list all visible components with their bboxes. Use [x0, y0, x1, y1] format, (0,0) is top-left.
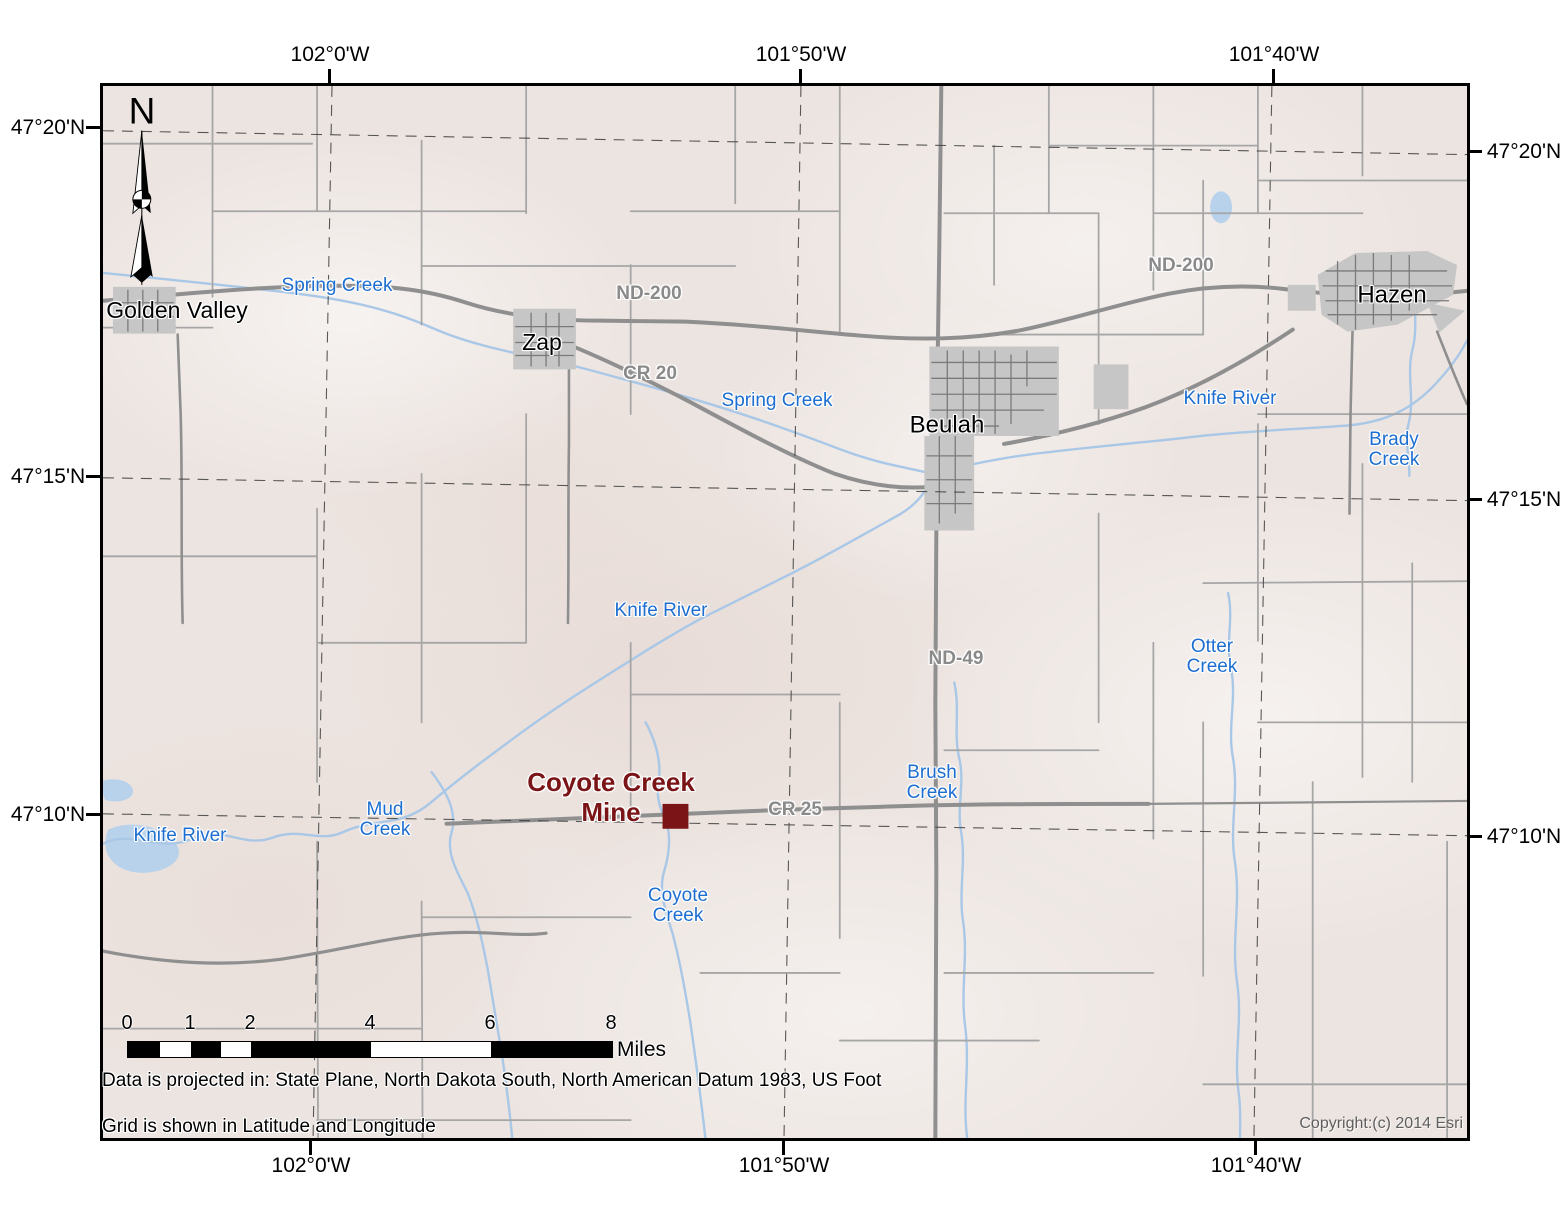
tick-top-102-0: [328, 69, 331, 83]
axis-label-right-47-20: 47°20'N: [1487, 141, 1561, 163]
zap-polygon: [513, 309, 576, 370]
tick-bottom-101-40: [1254, 1141, 1257, 1155]
scale-bar: 0 1 2 4 6 8 Miles: [127, 1012, 687, 1064]
axis-label-right-47-15: 47°15'N: [1487, 489, 1561, 511]
axis-label-top-101-50: 101°50'W: [756, 44, 847, 66]
town-streets: [115, 253, 1452, 523]
axis-label-bottom-102-0: 102°0'W: [272, 1155, 351, 1177]
graticule-layer: [103, 86, 1467, 1138]
axis-label-left-47-15: 47°15'N: [11, 466, 85, 488]
lakes-layer: [103, 191, 1232, 872]
scale-tick-0: 0: [121, 1012, 132, 1035]
tick-bottom-101-50: [782, 1141, 785, 1155]
axis-label-top-101-40: 101°40'W: [1229, 44, 1320, 66]
map-figure: 102°0'W 101°50'W 101°40'W 102°0'W 101°50…: [0, 0, 1568, 1212]
tick-right-47-20: [1468, 150, 1482, 153]
tick-top-101-40: [1272, 69, 1275, 83]
tick-left-47-20: [86, 126, 100, 129]
map-canvas: [100, 83, 1470, 1141]
scale-tick-4: 4: [364, 1012, 375, 1035]
tick-right-47-15: [1468, 498, 1482, 501]
scale-tick-8: 8: [605, 1012, 616, 1035]
axis-label-left-47-10: 47°10'N: [11, 804, 85, 826]
tick-bottom-102-0: [309, 1141, 312, 1155]
axis-label-top-102-0: 102°0'W: [291, 44, 370, 66]
copyright-note: Copyright:(c) 2014 Esri: [1299, 1115, 1463, 1133]
scale-tick-6: 6: [484, 1012, 495, 1035]
coyote-creek-mine-marker: [663, 804, 689, 829]
axis-label-right-47-10: 47°10'N: [1487, 826, 1561, 848]
map-geometry: [103, 86, 1467, 1138]
tick-top-101-50: [799, 69, 802, 83]
grid-note: Grid is shown in Latitude and Longitude: [102, 1116, 436, 1138]
scale-tick-2: 2: [244, 1012, 255, 1035]
scale-tick-1: 1: [184, 1012, 195, 1035]
projection-note: Data is projected in: State Plane, North…: [102, 1070, 881, 1092]
tick-left-47-15: [86, 475, 100, 478]
major-roads-layer: [103, 86, 1467, 1138]
scale-bar-segments: [127, 1041, 613, 1058]
scale-bar-unit: Miles: [617, 1038, 666, 1062]
minor-roads-layer: [103, 86, 1467, 1138]
tick-right-47-10: [1468, 835, 1482, 838]
rivers-layer: [103, 273, 1467, 1138]
tick-left-47-10: [86, 813, 100, 816]
north-arrow-icon: [131, 131, 153, 285]
golden-valley-polygon: [113, 287, 176, 334]
axis-label-bottom-101-40: 101°40'W: [1211, 1155, 1302, 1177]
scale-bar-numbers: 0 1 2 4 6 8: [127, 1012, 687, 1036]
axis-label-bottom-101-50: 101°50'W: [739, 1155, 830, 1177]
towns-layer: [113, 251, 1465, 530]
axis-label-left-47-20: 47°20'N: [11, 117, 85, 139]
